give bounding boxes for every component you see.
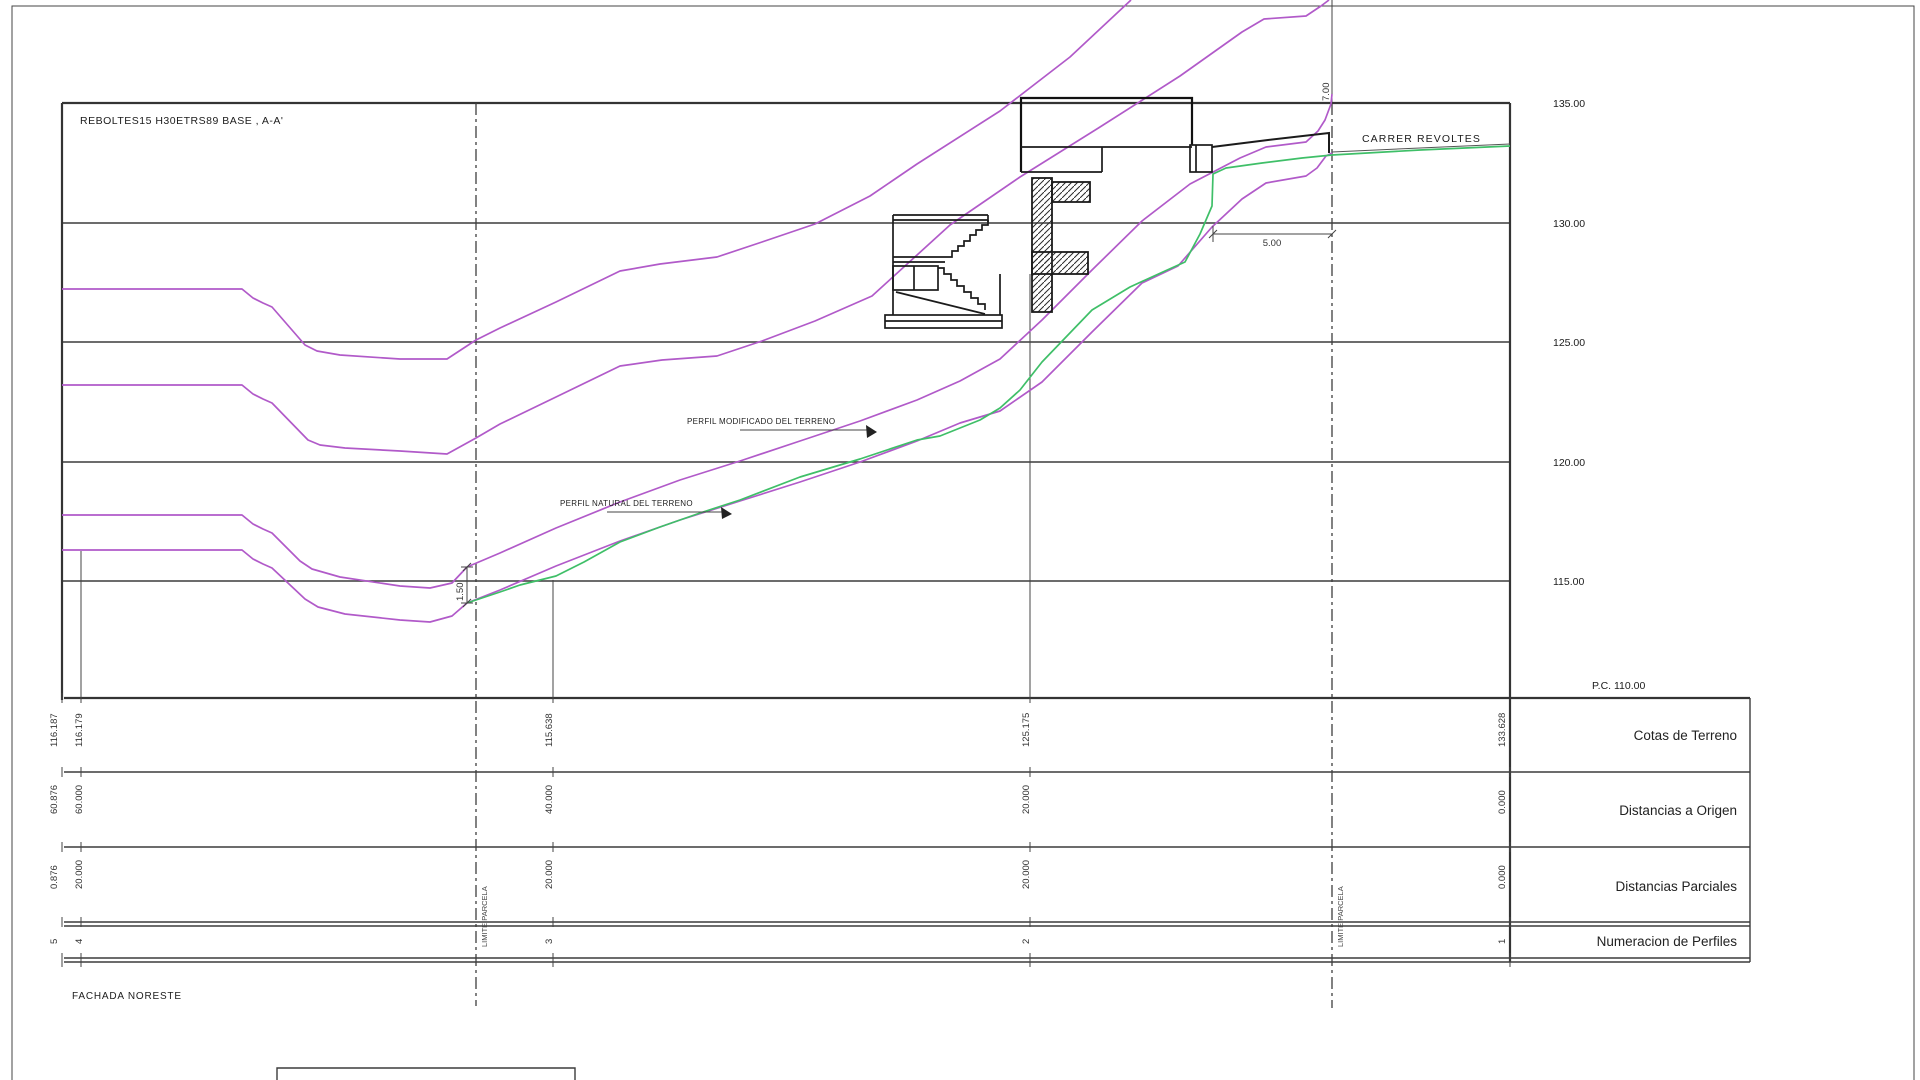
terrain-natural-line-1 [62,0,1131,359]
upper-slab-hatched [1052,182,1090,202]
cota-p1: 133.628 [1497,713,1508,747]
profile-table-labels: Cotas de Terreno Distancias a Origen Dis… [1597,728,1738,949]
cota-p2: 125.175 [1021,713,1032,747]
origen-p1: 0.000 [1497,790,1508,814]
drawing-title: REBOLTES15 H30ETRS89 BASE , A-A' [80,115,283,127]
profile-modified-label: PERFIL MODIFICADO DEL TERRENO [687,417,835,426]
numero-p3: 3 [544,939,555,944]
dimension-street-offset-label: 7.00 [1321,83,1332,102]
numero-p1: 1 [1497,939,1508,944]
row-label-parciales: Distancias Parciales [1615,879,1737,894]
elevation-label-135: 135.00 [1553,98,1585,110]
kerb-block [1190,145,1212,172]
profile-table-values: 116.187 116.179 115.638 125.175 133.628 … [49,713,1508,944]
cota-p5: 116.187 [49,713,60,747]
origen-p4: 60.000 [74,785,85,814]
origen-p5: 60.876 [49,785,60,814]
profile-modified-arrow [866,425,877,438]
datum-label: P.C. 110.00 [1592,680,1645,692]
profile-natural-label: PERFIL NATURAL DEL TERRENO [560,499,693,508]
building-section [885,98,1329,328]
parcial-p5: 0.876 [49,865,60,889]
section-drawing: 5.00 7.00 1.50 REBOLTES15 H30ETRS89 BASE… [0,0,1920,1080]
stair-flight-upper [945,220,988,257]
elevation-labels: 135.00 130.00 125.00 120.00 115.00 P.C. … [1553,98,1645,692]
dimension-terrain-gap-label: 1.50 [455,583,466,602]
terrain-natural-line-2 [62,0,1329,454]
street-label: CARRER REVOLTES [1362,133,1481,145]
mid-landing [893,257,945,262]
elevation-grid [62,103,1510,962]
sheet-border [12,6,1914,1080]
cota-p4: 116.179 [74,713,85,747]
parcel-limit-label-right: LIMITE PARCELA [1336,886,1345,947]
dimension-road-width-label: 5.00 [1263,238,1282,249]
terrain-natural-lines [62,0,1332,622]
lower-slab-hatched [1032,252,1088,274]
row-label-numeros: Numeracion de Perfiles [1597,934,1738,949]
dimensions: 5.00 7.00 1.50 [455,83,1336,608]
parcel-limit-label-left: LIMITE PARCELA [480,886,489,947]
legend-box [277,1068,575,1080]
cota-p3: 115.638 [544,713,555,747]
elevation-label-130: 130.00 [1553,218,1585,230]
drawing-sheet: 5.00 7.00 1.50 REBOLTES15 H30ETRS89 BASE… [0,0,1920,1080]
parcial-p2: 20.000 [1021,860,1032,889]
road-line [1212,133,1329,153]
row-label-cotas: Cotas de Terreno [1634,728,1737,743]
row-label-origen: Distancias a Origen [1619,803,1737,818]
numero-p4: 4 [74,939,85,944]
parcial-p3: 20.000 [544,860,555,889]
parcial-p4: 20.000 [74,860,85,889]
parcial-p1: 0.000 [1497,865,1508,889]
facade-label: FACHADA NORESTE [72,991,182,1002]
elevation-label-125: 125.00 [1553,337,1585,349]
numero-p2: 2 [1021,939,1032,944]
profile-natural-arrow [721,507,732,519]
elevation-label-115: 115.00 [1553,576,1584,588]
profile-markers [81,274,1030,698]
terrain-modified-line [467,144,1510,603]
wall-hatched [1032,178,1052,312]
numero-p5: 5 [49,939,60,944]
origen-p2: 20.000 [1021,785,1032,814]
elevation-label-120: 120.00 [1553,457,1585,469]
origen-p3: 40.000 [544,785,555,814]
